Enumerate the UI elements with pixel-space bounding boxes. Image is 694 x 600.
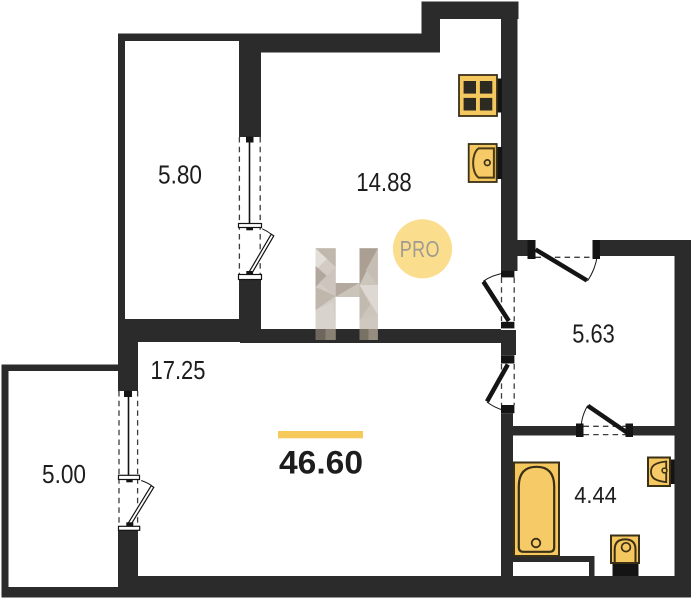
svg-text:4.44: 4.44: [574, 482, 617, 508]
svg-text:17.25: 17.25: [151, 357, 206, 385]
svg-text:5.00: 5.00: [42, 461, 86, 489]
svg-text:5.80: 5.80: [158, 162, 202, 190]
svg-text:5.63: 5.63: [572, 320, 615, 348]
svg-text:46.60: 46.60: [279, 445, 363, 481]
svg-text:14.88: 14.88: [356, 169, 412, 197]
svg-text:PRO: PRO: [400, 236, 440, 262]
